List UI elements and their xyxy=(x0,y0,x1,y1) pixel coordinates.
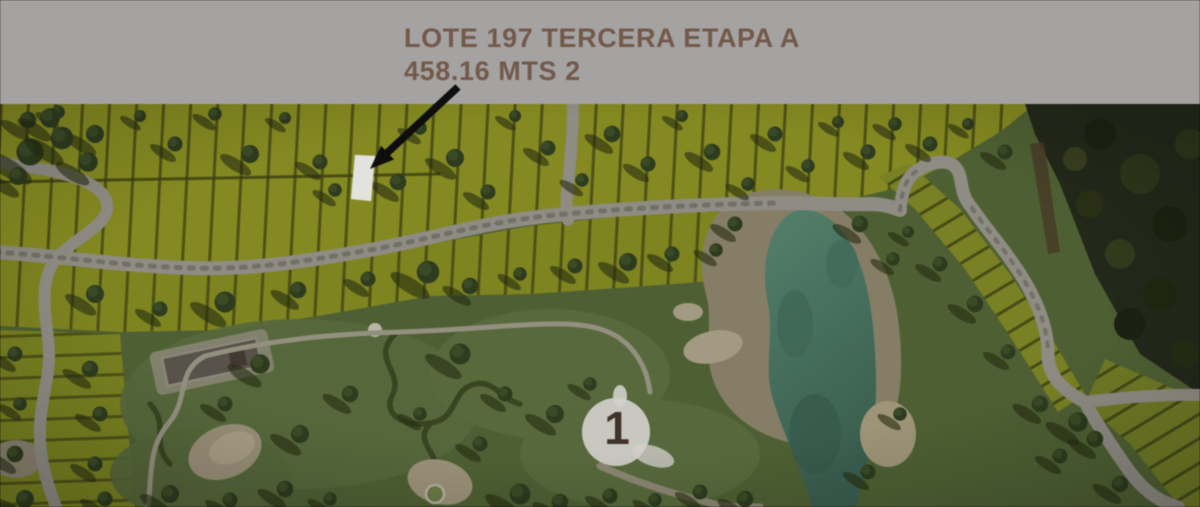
lot-title: LOTE 197 TERCERA ETAPA A xyxy=(404,22,800,55)
hole-1-label: 1 xyxy=(591,401,643,455)
lot-annotation: LOTE 197 TERCERA ETAPA A 458.16 MTS 2 xyxy=(404,22,800,88)
listing-banner: LOTE 197 TERCERA ETAPA A 458.16 MTS 2 xyxy=(0,0,1200,104)
lot-area: 458.16 MTS 2 xyxy=(404,55,800,88)
listing-screenshot: LOTE 197 TERCERA ETAPA A 458.16 MTS 2 xyxy=(0,0,1200,507)
